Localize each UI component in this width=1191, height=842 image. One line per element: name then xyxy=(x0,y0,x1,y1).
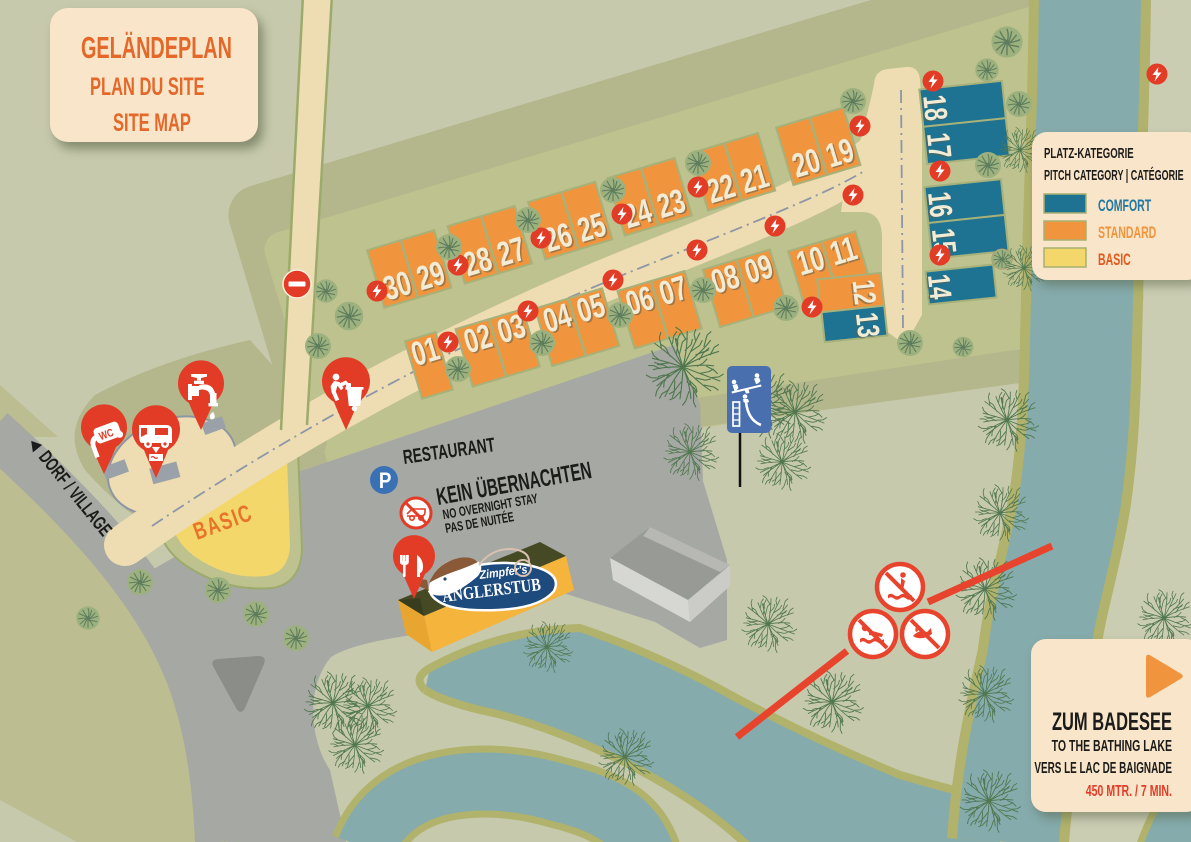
svg-text:ZUM BADESEE: ZUM BADESEE xyxy=(1052,709,1172,736)
svg-text:P: P xyxy=(379,470,391,494)
svg-text:12: 12 xyxy=(846,278,883,306)
svg-text:COMFORT: COMFORT xyxy=(1098,195,1151,214)
svg-text:PLAN DU SITE: PLAN DU SITE xyxy=(90,74,205,101)
svg-text:16: 16 xyxy=(921,190,959,219)
svg-text:14: 14 xyxy=(921,273,958,301)
svg-text:TO THE BATHING LAKE: TO THE BATHING LAKE xyxy=(1052,737,1172,755)
svg-text:13: 13 xyxy=(849,311,886,339)
svg-text:PLATZ-KATEGORIE: PLATZ-KATEGORIE xyxy=(1044,145,1134,162)
svg-text:17: 17 xyxy=(920,131,958,160)
svg-text:SITE MAP: SITE MAP xyxy=(113,110,191,137)
svg-text:450 MTR. / 7 MIN.: 450 MTR. / 7 MIN. xyxy=(1086,782,1172,800)
svg-text:STANDARD: STANDARD xyxy=(1098,222,1156,241)
svg-text:PITCH CATEGORY | CATÉGORIE: PITCH CATEGORY | CATÉGORIE xyxy=(1044,165,1184,183)
svg-text:BASIC: BASIC xyxy=(1098,249,1131,268)
svg-text:GELÄNDEPLAN: GELÄNDEPLAN xyxy=(81,29,232,65)
svg-text:18: 18 xyxy=(916,93,954,122)
svg-text:VERS LE LAC DE BAIGNADE: VERS LE LAC DE BAIGNADE xyxy=(1034,759,1172,777)
